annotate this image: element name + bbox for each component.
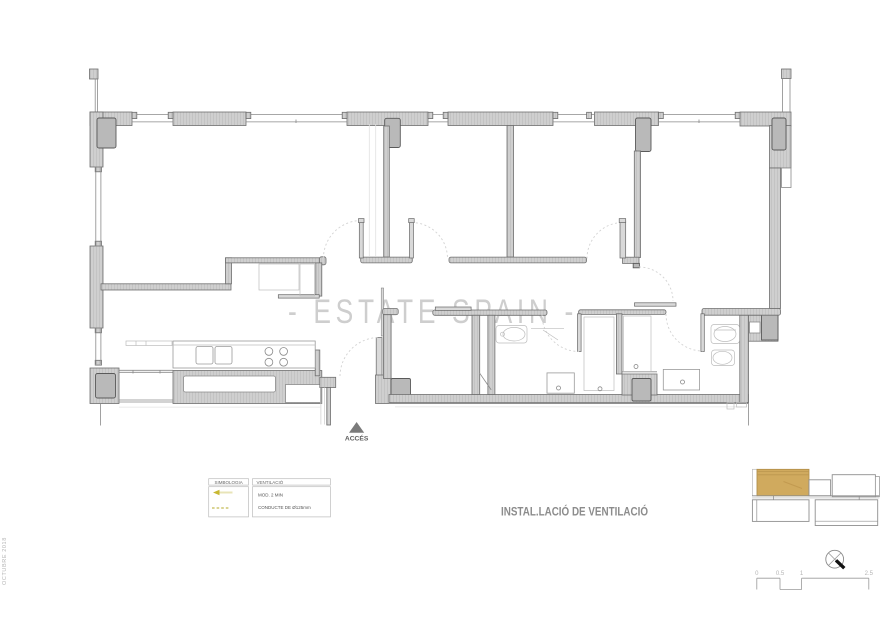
svg-text:MOD. 2 MIN: MOD. 2 MIN <box>258 493 283 498</box>
svg-text:INSTAL.LACIÓ DE VENTILACIÓ: INSTAL.LACIÓ DE VENTILACIÓ <box>501 504 648 519</box>
svg-text:0: 0 <box>755 571 759 577</box>
svg-text:SIMBOLOGIA: SIMBOLOGIA <box>214 480 242 485</box>
svg-text:CONDUCTE DE Ø125mm: CONDUCTE DE Ø125mm <box>258 505 311 510</box>
svg-text:VENTILACIÓ: VENTILACIÓ <box>257 479 284 485</box>
svg-text:1: 1 <box>800 571 804 577</box>
svg-text:OCTUBRE 2018: OCTUBRE 2018 <box>2 537 8 585</box>
svg-text:2.5: 2.5 <box>865 571 874 577</box>
svg-text:0.5: 0.5 <box>776 571 785 577</box>
svg-text:ACCÉS: ACCÉS <box>345 434 369 443</box>
